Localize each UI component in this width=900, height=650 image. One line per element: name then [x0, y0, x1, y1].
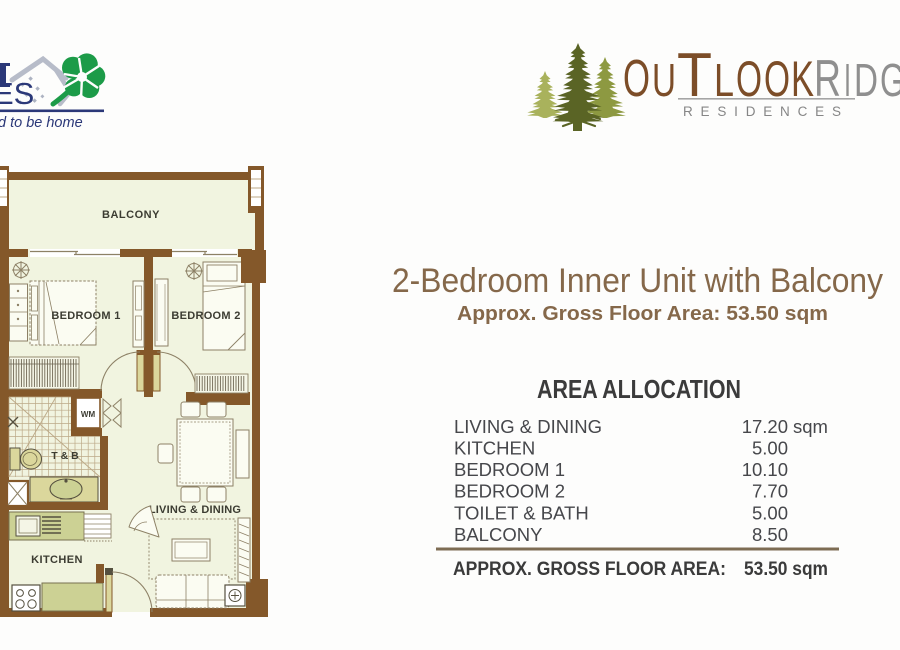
- svg-text:D: D: [854, 54, 878, 106]
- svg-text:O: O: [623, 50, 650, 108]
- svg-text:5.00: 5.00: [752, 438, 788, 459]
- svg-text:17.20: 17.20: [742, 416, 788, 437]
- svg-text:WM: WM: [81, 410, 96, 419]
- svg-text:BEDROOM 2: BEDROOM 2: [171, 310, 240, 322]
- svg-text:Approx. Gross Floor Area: 53.5: Approx. Gross Floor Area: 53.50 sqm: [457, 302, 828, 325]
- svg-text:APPROX. GROSS FLOOR AREA:: APPROX. GROSS FLOOR AREA:: [453, 559, 726, 580]
- svg-text:BALCONY: BALCONY: [102, 209, 160, 221]
- svg-text:5.00: 5.00: [752, 503, 788, 524]
- svg-text:AREA ALLOCATION: AREA ALLOCATION: [537, 374, 741, 404]
- svg-text:BEDROOM 1: BEDROOM 1: [51, 310, 120, 322]
- svg-text:10.10: 10.10: [742, 459, 788, 480]
- svg-text:53.50 sqm: 53.50 sqm: [744, 559, 828, 580]
- svg-text:BALCONY: BALCONY: [454, 524, 542, 545]
- svg-text:T & B: T & B: [51, 450, 79, 462]
- svg-text:8.50: 8.50: [752, 524, 788, 545]
- svg-text:T: T: [677, 41, 712, 110]
- svg-text:sqm: sqm: [793, 416, 828, 437]
- svg-text:LIVING & DINING: LIVING & DINING: [454, 416, 602, 437]
- svg-text:ES: ES: [0, 76, 34, 111]
- svg-text:2-Bedroom Inner Unit with Balc: 2-Bedroom Inner Unit with Balcony: [392, 262, 883, 300]
- svg-text:BEDROOM 2: BEDROOM 2: [454, 481, 565, 502]
- svg-text:BEDROOM 1: BEDROOM 1: [454, 459, 565, 480]
- svg-text:TOILET & BATH: TOILET & BATH: [454, 503, 589, 524]
- svg-text:U: U: [652, 54, 676, 106]
- svg-text:KITCHEN: KITCHEN: [454, 438, 535, 459]
- svg-text:G: G: [880, 54, 900, 106]
- svg-text:LIVING & DINING: LIVING & DINING: [149, 504, 241, 516]
- svg-text:7.70: 7.70: [752, 481, 788, 502]
- svg-text:RESIDENCES: RESIDENCES: [683, 104, 849, 119]
- svg-text:KITCHEN: KITCHEN: [31, 554, 83, 566]
- svg-text:d to be home: d to be home: [0, 115, 83, 131]
